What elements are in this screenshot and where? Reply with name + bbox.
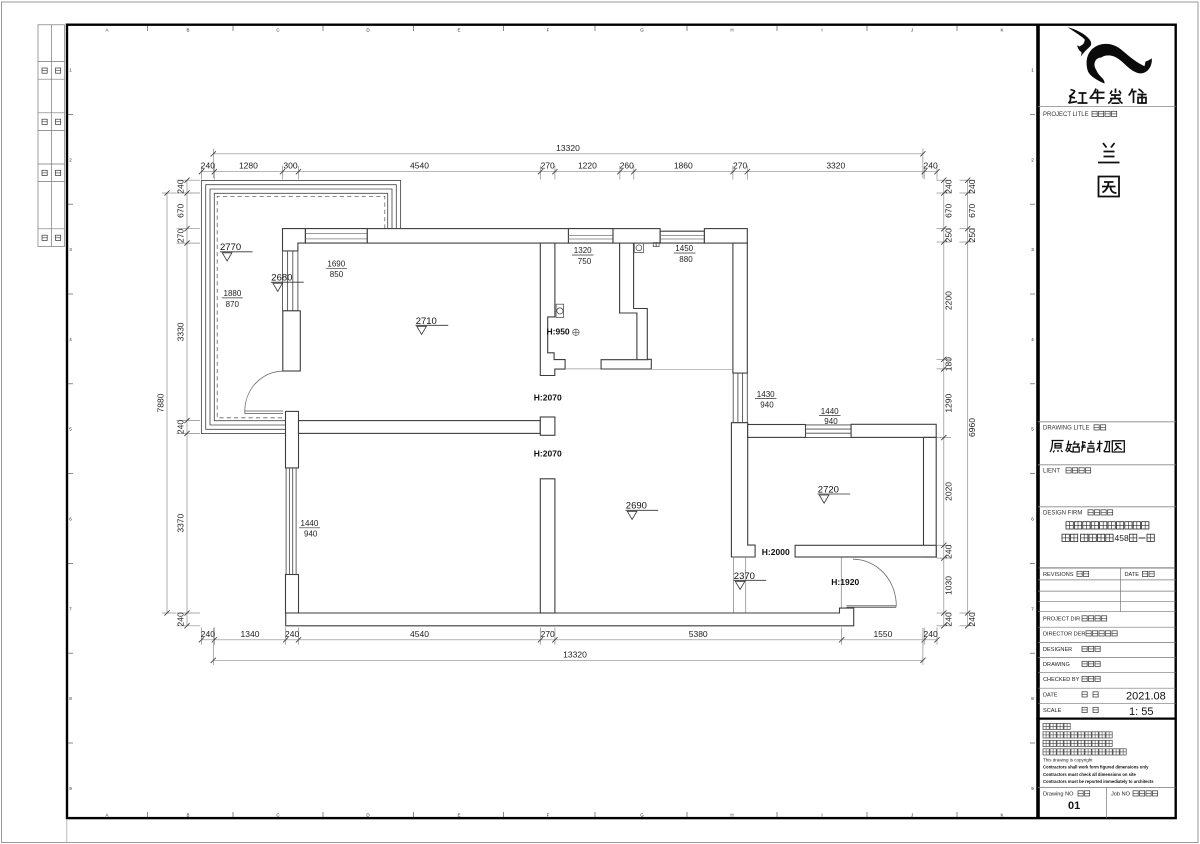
svg-text:13320: 13320 [563, 650, 587, 660]
svg-text:240: 240 [285, 629, 299, 639]
svg-text:G: G [640, 28, 644, 33]
svg-text:880: 880 [679, 255, 693, 264]
svg-text:670: 670 [967, 203, 977, 217]
svg-text:DESIGN FIRM: DESIGN FIRM [1043, 511, 1082, 517]
svg-text:1340: 1340 [241, 629, 260, 639]
svg-text:H:950: H:950 [547, 327, 570, 337]
svg-text:240: 240 [175, 612, 185, 626]
svg-text:H:2070: H:2070 [534, 392, 562, 402]
svg-text:250: 250 [967, 228, 977, 242]
svg-text:940: 940 [760, 400, 774, 409]
svg-text:850: 850 [330, 270, 344, 279]
svg-text:DRAWING: DRAWING [1043, 662, 1070, 668]
svg-text:PROJECT DIR: PROJECT DIR [1043, 617, 1080, 623]
svg-text:240: 240 [175, 179, 185, 193]
svg-text:H:1920: H:1920 [831, 577, 859, 587]
svg-text:7880: 7880 [155, 393, 165, 412]
svg-text:300: 300 [283, 161, 297, 171]
svg-text:240: 240 [201, 161, 215, 171]
svg-text:F: F [547, 813, 550, 818]
svg-text:1220: 1220 [578, 161, 597, 171]
svg-text:1550: 1550 [873, 629, 892, 639]
svg-text:1860: 1860 [674, 161, 693, 171]
svg-text:E: E [457, 28, 460, 33]
svg-text:E: E [457, 813, 460, 818]
svg-text:2200: 2200 [943, 291, 953, 310]
svg-text:This drawing is copyright: This drawing is copyright [1043, 758, 1093, 763]
svg-text:940: 940 [824, 417, 838, 426]
svg-text:750: 750 [578, 257, 592, 266]
svg-text:260: 260 [620, 161, 634, 171]
svg-text:DATE: DATE [1043, 693, 1058, 699]
svg-text:Contractors must check all dim: Contractors must check all dimensions on… [1043, 772, 1137, 777]
svg-text:240: 240 [967, 612, 977, 626]
svg-text:I: I [821, 813, 822, 818]
svg-text:1440: 1440 [301, 519, 319, 528]
svg-text:DIRECTOR DER: DIRECTOR DER [1043, 632, 1085, 638]
svg-text:1030: 1030 [943, 576, 953, 595]
svg-text:K: K [1000, 28, 1003, 33]
svg-text:240: 240 [943, 544, 953, 558]
svg-text:B: B [186, 813, 189, 818]
svg-text:Contractors must be reported i: Contractors must be reported immediately… [1043, 779, 1154, 784]
svg-text:270: 270 [175, 229, 185, 243]
svg-text:1880: 1880 [224, 289, 242, 298]
svg-text:H: H [730, 813, 733, 818]
svg-text:670: 670 [943, 203, 953, 217]
svg-text:458: 458 [1115, 533, 1129, 543]
svg-text:13320: 13320 [556, 143, 580, 153]
svg-text:H:2070: H:2070 [534, 448, 562, 458]
svg-text:6960: 6960 [967, 418, 977, 437]
svg-text:01: 01 [1068, 800, 1080, 812]
svg-text:670: 670 [175, 203, 185, 217]
svg-text:LIENT: LIENT [1043, 469, 1060, 475]
svg-text:DRAWING LITLE: DRAWING LITLE [1043, 426, 1089, 432]
svg-text:Contractors shall work form fi: Contractors shall work form figured dime… [1043, 765, 1149, 770]
svg-text:1690: 1690 [327, 260, 345, 269]
svg-text:3320: 3320 [826, 161, 845, 171]
svg-text:Drawing NO: Drawing NO [1043, 792, 1074, 798]
svg-text:H:2000: H:2000 [762, 547, 790, 557]
svg-text:J: J [911, 28, 913, 33]
svg-text:240: 240 [943, 612, 953, 626]
svg-text:1290: 1290 [943, 393, 953, 412]
svg-text:2770: 2770 [220, 242, 241, 253]
svg-text:270: 270 [541, 161, 555, 171]
svg-text:1320: 1320 [574, 246, 592, 255]
svg-text:SCALE: SCALE [1043, 708, 1062, 714]
svg-text:270: 270 [733, 161, 747, 171]
svg-text:3370: 3370 [175, 513, 185, 532]
svg-text:940: 940 [304, 530, 318, 539]
svg-text:1440: 1440 [821, 407, 839, 416]
svg-text:870: 870 [226, 300, 240, 309]
svg-text:REVISIONS: REVISIONS [1043, 572, 1074, 578]
svg-text:240: 240 [175, 420, 185, 434]
svg-text:2020: 2020 [943, 482, 953, 501]
svg-text:H: H [730, 28, 733, 33]
svg-text:A: A [105, 28, 108, 33]
svg-text:240: 240 [943, 179, 953, 193]
svg-text:CHECKED BY: CHECKED BY [1043, 677, 1080, 683]
svg-text:F: F [547, 28, 550, 33]
svg-text:1450: 1450 [675, 244, 693, 253]
svg-text:240: 240 [967, 179, 977, 193]
svg-text:K: K [1000, 813, 1003, 818]
svg-text:270: 270 [541, 629, 555, 639]
svg-text:3330: 3330 [175, 322, 185, 341]
svg-text:4540: 4540 [410, 629, 429, 639]
svg-text:1280: 1280 [239, 161, 258, 171]
svg-text:PROJECT LITLE: PROJECT LITLE [1043, 112, 1089, 118]
svg-text:DESIGNER: DESIGNER [1043, 647, 1072, 653]
svg-text:J: J [911, 813, 913, 818]
svg-text:5380: 5380 [689, 629, 708, 639]
svg-text:G: G [640, 813, 644, 818]
svg-text:B: B [186, 28, 189, 33]
svg-text:1430: 1430 [757, 390, 775, 399]
svg-text:A: A [105, 813, 108, 818]
svg-text:Job NO: Job NO [1111, 792, 1131, 798]
svg-text:4540: 4540 [410, 161, 429, 171]
svg-text:I: I [821, 28, 822, 33]
svg-text:1: 55: 1: 55 [1129, 706, 1153, 718]
svg-text:180: 180 [943, 357, 953, 371]
svg-text:250: 250 [943, 228, 953, 242]
svg-text:240: 240 [924, 161, 938, 171]
svg-text:2021.08: 2021.08 [1126, 691, 1166, 703]
svg-text:240: 240 [924, 629, 938, 639]
svg-text:DATE: DATE [1125, 572, 1140, 578]
